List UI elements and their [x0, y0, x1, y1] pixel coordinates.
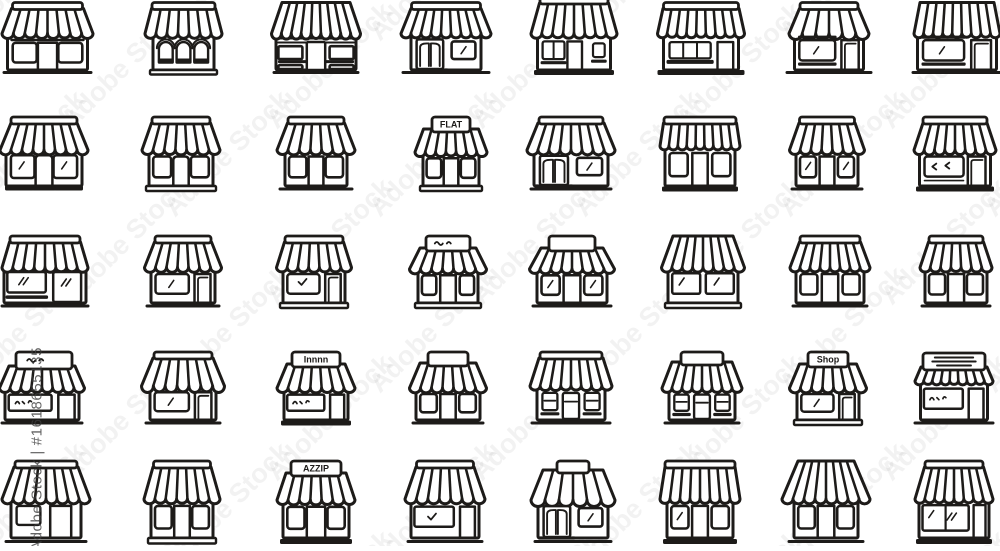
svg-text:Innnn: Innnn	[304, 355, 329, 365]
svg-text:AZZIP: AZZIP	[303, 464, 329, 474]
svg-text:FLAT: FLAT	[440, 120, 463, 130]
svg-text:Adobe Stock | #1618655135: Adobe Stock | #1618655135	[29, 347, 46, 546]
svg-text:Shop: Shop	[817, 355, 840, 365]
